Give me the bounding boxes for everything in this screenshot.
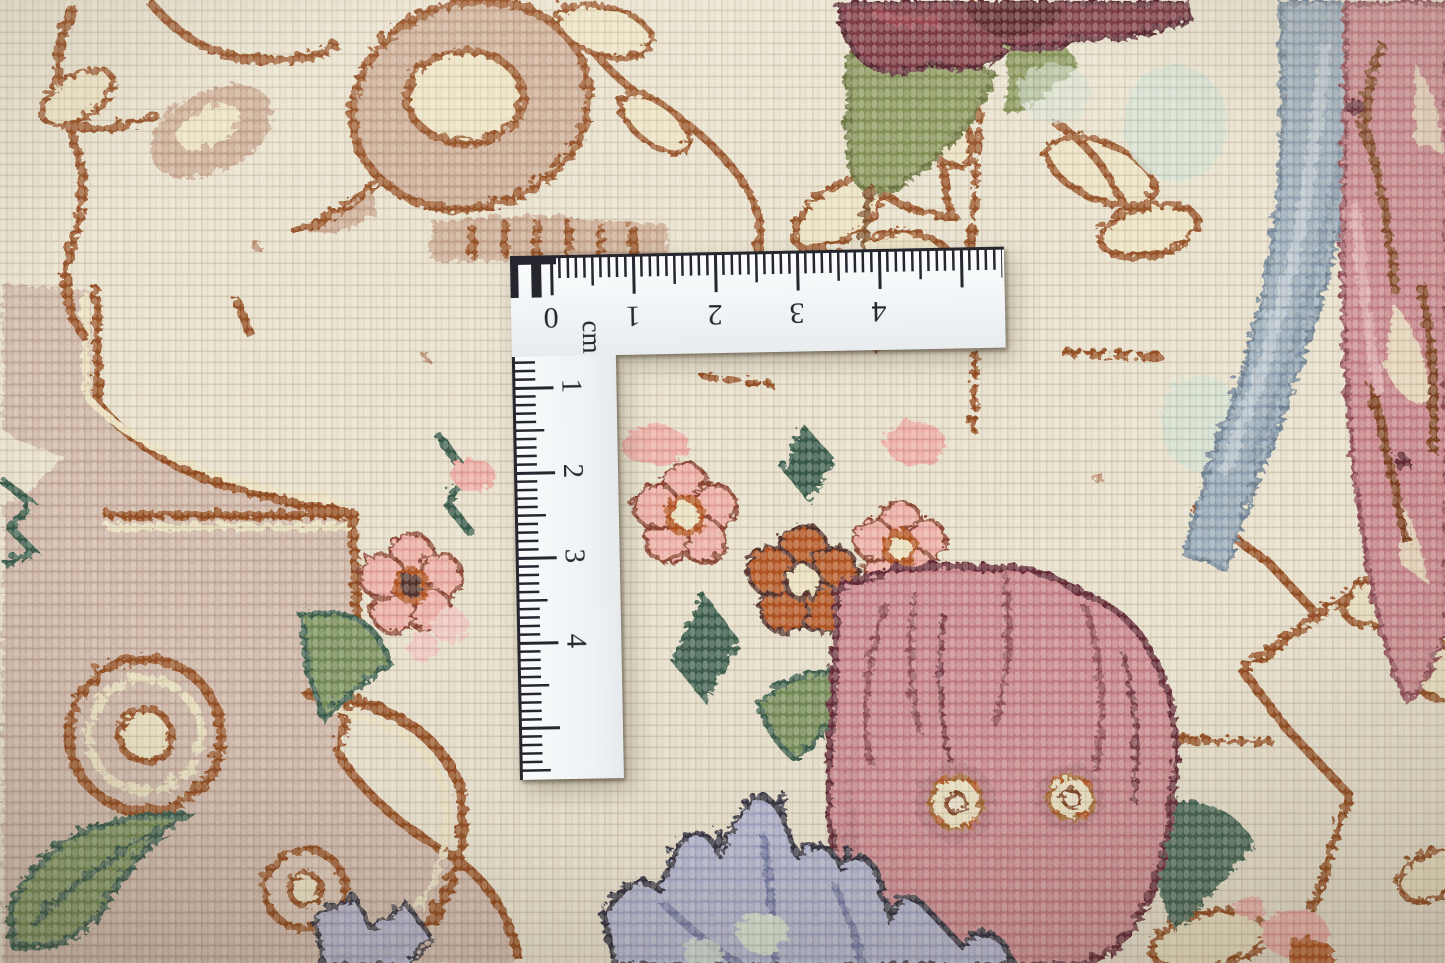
ruler-number-v3: 3 [556,539,591,574]
carpet-photo: 1 2 3 4 0 1 2 3 4 cm [0,0,1445,963]
ruler-unit-label: cm [576,317,608,358]
ruler-number-h1: 1 [613,298,654,333]
ruler-number-v2: 2 [555,454,590,489]
ruler-zero-corner-mark-left [510,256,519,298]
ruler-number-h0: 0 [531,300,572,335]
ruler-zero-corner-mark-bar [531,255,542,297]
ruler-ticks-horizontal-cm [550,250,1003,296]
ruler-number-v4: 4 [558,624,593,659]
ruler-number-h2: 2 [695,297,736,332]
ruler: 1 2 3 4 0 1 2 3 4 cm [510,247,1014,780]
ruler-horizontal-arm: 0 1 2 3 4 cm [510,247,1006,357]
ruler-number-h4: 4 [859,294,900,329]
ruler-number-v1: 1 [553,369,588,404]
ruler-number-h3: 3 [777,295,818,330]
